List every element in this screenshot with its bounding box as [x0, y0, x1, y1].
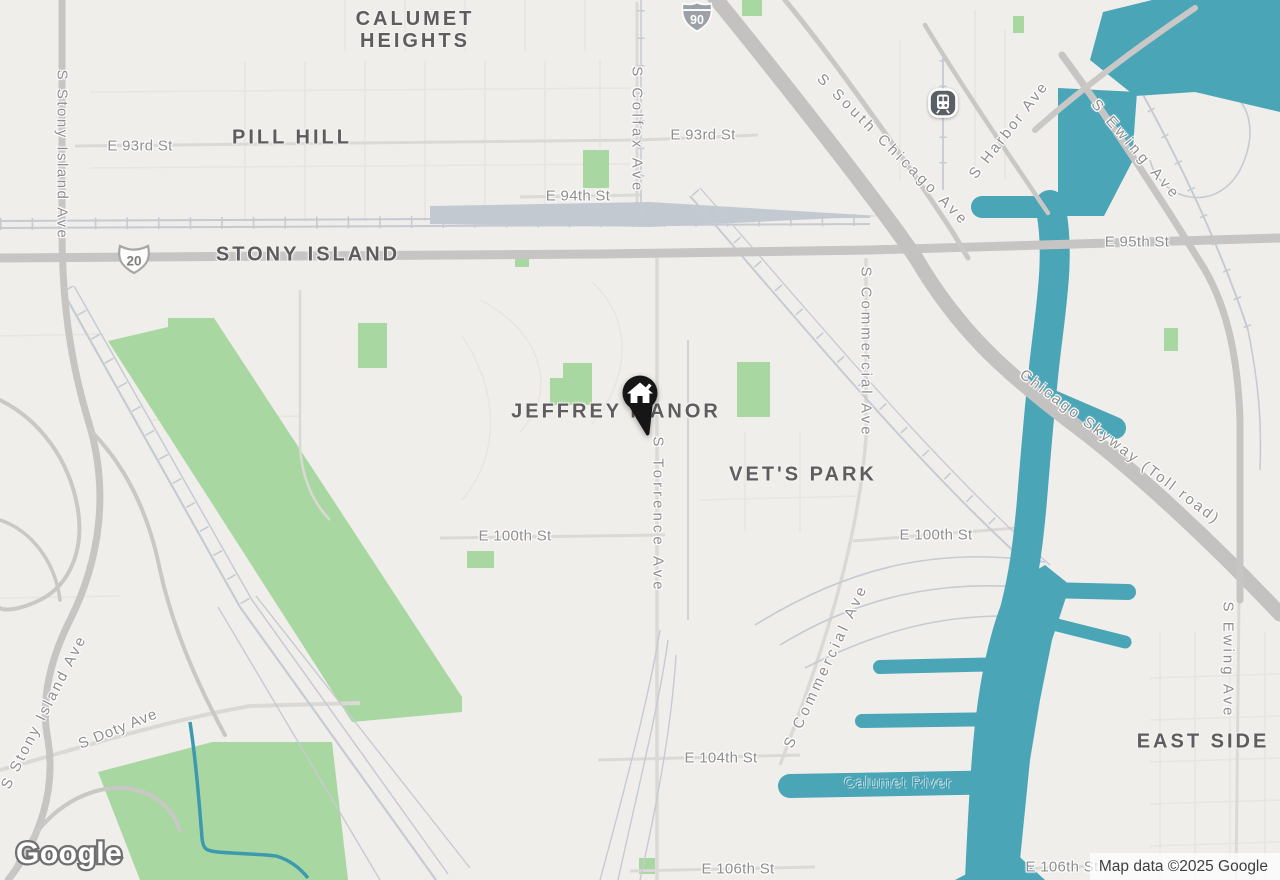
- svg-text:Google: Google: [16, 837, 122, 870]
- home-marker-pin[interactable]: [612, 354, 668, 442]
- svg-text:20: 20: [126, 254, 141, 269]
- svg-text:90: 90: [690, 13, 704, 27]
- train-station-icon[interactable]: [925, 85, 961, 121]
- interstate-90-shield: 90: [681, 2, 713, 33]
- us-route-20-shield: 20: [115, 242, 153, 276]
- map-attribution: Map data ©2025 Google: [1090, 853, 1280, 880]
- map-canvas[interactable]: CALUMET HEIGHTS PILL HILL STONY ISLAND J…: [0, 0, 1280, 880]
- google-logo[interactable]: Google: [8, 830, 144, 874]
